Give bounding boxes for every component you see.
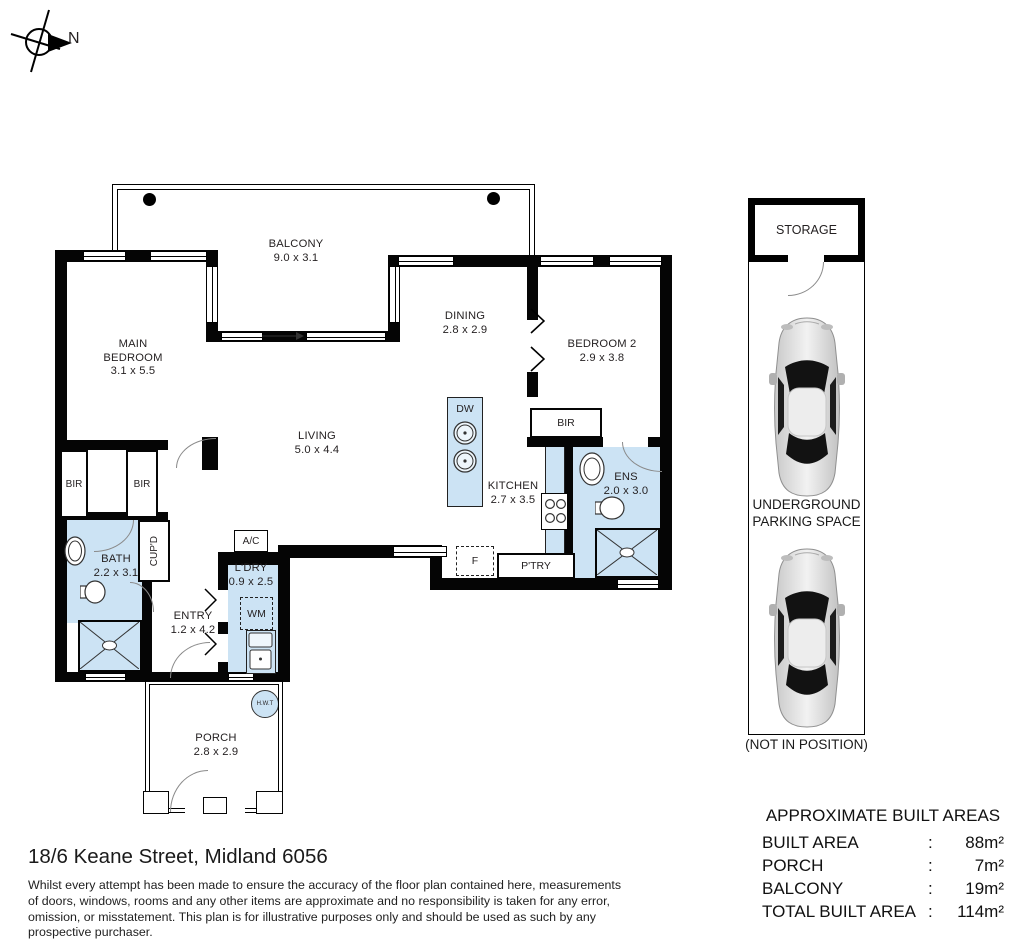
room-name: BEDROOM 2 xyxy=(557,338,647,352)
window xyxy=(389,266,400,323)
room-label-bath: BATH 2.2 x 3.1 xyxy=(76,553,156,580)
porch-post xyxy=(143,791,169,814)
window xyxy=(83,251,126,261)
window xyxy=(306,332,386,341)
room-label-laundry: L'DRY 0.9 x 2.5 xyxy=(211,562,291,589)
room-dims: 2.8 x 2.9 xyxy=(176,746,256,760)
room-dims: 2.9 x 3.8 xyxy=(557,352,647,366)
room-name: MAIN BEDROOM xyxy=(93,338,173,365)
built-areas-table: APPROXIMATE BUILT AREAS BUILT AREA : 88m… xyxy=(762,806,1004,923)
window xyxy=(540,256,594,266)
porch-post xyxy=(256,791,283,814)
pantry-label: P'TRY xyxy=(521,560,551,572)
robe-label: BIR xyxy=(557,417,575,429)
window xyxy=(221,332,263,341)
fridge: F xyxy=(456,546,494,576)
window xyxy=(206,266,218,323)
room-label-ensuite: ENS 2.0 x 3.0 xyxy=(586,471,666,498)
areas-row: PORCH : 7m² xyxy=(762,854,1004,877)
balcony-column xyxy=(487,192,500,205)
window xyxy=(609,256,662,266)
parking-caption: UNDERGROUND PARKING SPACE xyxy=(740,496,873,530)
hall-robe-1: BIR xyxy=(60,450,88,518)
wall xyxy=(527,372,538,397)
room-label-kitchen: KITCHEN 2.7 x 3.5 xyxy=(473,480,553,507)
room-name: BALCONY xyxy=(256,238,336,252)
robe-label: BIR xyxy=(134,479,151,490)
window xyxy=(393,546,447,557)
areas-title: APPROXIMATE BUILT AREAS xyxy=(762,806,1004,826)
hall-robe-2: BIR xyxy=(126,450,158,518)
room-name: L'DRY xyxy=(211,562,291,576)
area-separator: : xyxy=(928,877,944,900)
room-dims: 2.0 x 3.0 xyxy=(586,485,666,499)
area-label: TOTAL BUILT AREA xyxy=(762,900,928,923)
room-dims: 5.0 x 4.4 xyxy=(277,444,357,458)
room-label-balcony: BALCONY 9.0 x 3.1 xyxy=(256,238,336,265)
washing-machine: WM xyxy=(240,597,273,630)
room-name: ENTRY xyxy=(153,610,233,624)
ensuite-shower xyxy=(595,528,660,578)
area-value: 7m² xyxy=(944,854,1004,877)
room-dims: 1.2 x 4.2 xyxy=(153,624,233,638)
room-label-living: LIVING 5.0 x 4.4 xyxy=(277,430,357,457)
room-name: KITCHEN xyxy=(473,480,553,494)
parking-note: (NOT IN POSITION) xyxy=(730,736,883,753)
door-arc xyxy=(170,642,210,678)
area-label: BALCONY xyxy=(762,877,928,900)
sliding-door-arrow-icon xyxy=(262,330,304,342)
window xyxy=(85,673,126,681)
balcony-column xyxy=(143,193,156,206)
car-top-view-icon xyxy=(767,315,847,498)
wm-label: WM xyxy=(247,608,266,620)
wall xyxy=(527,437,603,447)
room-name: PORCH xyxy=(176,732,256,746)
room-name: LIVING xyxy=(277,430,357,444)
storage-label: STORAGE xyxy=(776,223,837,237)
area-separator: : xyxy=(928,831,944,854)
robe-label: BIR xyxy=(66,479,83,490)
door-arc xyxy=(176,438,216,468)
pantry: P'TRY xyxy=(497,553,575,579)
bath-shower xyxy=(78,620,142,672)
area-value: 88m² xyxy=(944,831,1004,854)
parking-section: STORAGE UNDERGROUND PARKIN xyxy=(730,190,890,770)
dishwasher-label: DW xyxy=(448,403,482,415)
room-dims: 3.1 x 5.5 xyxy=(93,365,173,379)
room-label-main-bedroom: MAIN BEDROOM 3.1 x 5.5 xyxy=(93,338,173,379)
window xyxy=(617,579,659,589)
area-separator: : xyxy=(928,854,944,877)
area-label: BUILT AREA xyxy=(762,831,928,854)
areas-row: BUILT AREA : 88m² xyxy=(762,831,1004,854)
room-name: ENS xyxy=(586,471,666,485)
bifold-door-chevron-icon xyxy=(204,588,217,612)
disclaimer-text: Whilst every attempt has been made to en… xyxy=(28,878,632,941)
parking-caption-line2: PARKING SPACE xyxy=(740,513,873,530)
room-dims: 2.8 x 2.9 xyxy=(425,324,505,338)
room-name: BATH xyxy=(76,553,156,567)
car-top-view-icon xyxy=(767,546,847,729)
sliding-door-chevron-icon xyxy=(530,346,545,372)
trough-icon xyxy=(247,631,274,672)
porch-post xyxy=(203,797,227,814)
room-label-porch: PORCH 2.8 x 2.9 xyxy=(176,732,256,759)
area-value: 114m² xyxy=(944,900,1004,923)
area-separator: : xyxy=(928,900,944,923)
air-conditioner: A/C xyxy=(234,530,268,552)
bedroom2-robe: BIR xyxy=(530,408,602,438)
floor-plan: DW BIR BIR BIR CUP'D A/C WM F P'TRY xyxy=(0,0,700,830)
areas-row: BALCONY : 19m² xyxy=(762,877,1004,900)
room-label-dining: DINING 2.8 x 2.9 xyxy=(425,310,505,337)
toilet-icon xyxy=(80,580,106,604)
window xyxy=(398,256,454,266)
room-dims: 2.7 x 3.5 xyxy=(473,494,553,508)
ac-label: A/C xyxy=(243,536,260,547)
room-name: DINING xyxy=(425,310,505,324)
double-sink-icon xyxy=(448,417,482,487)
toilet-icon xyxy=(595,495,625,521)
room-dims: 9.0 x 3.1 xyxy=(256,252,336,266)
room-label-entry: ENTRY 1.2 x 4.2 xyxy=(153,610,233,637)
areas-row: TOTAL BUILT AREA : 114m² xyxy=(762,900,1004,923)
room-label-bedroom2: BEDROOM 2 2.9 x 3.8 xyxy=(557,338,647,365)
property-address: 18/6 Keane Street, Midland 6056 xyxy=(28,845,328,869)
shower-icon xyxy=(80,622,139,669)
window xyxy=(150,251,207,261)
room-dims: 0.9 x 2.5 xyxy=(211,576,291,590)
area-label: PORCH xyxy=(762,854,928,877)
parking-caption-line1: UNDERGROUND xyxy=(740,496,873,513)
laundry-trough xyxy=(246,630,276,674)
wall xyxy=(55,440,168,450)
shower-icon xyxy=(597,530,657,575)
area-value: 19m² xyxy=(944,877,1004,900)
wall xyxy=(660,255,672,590)
fridge-label: F xyxy=(472,555,478,567)
floorplan-page: N xyxy=(0,0,1024,952)
room-dims: 2.2 x 3.1 xyxy=(76,567,156,581)
sliding-door-chevron-icon xyxy=(530,308,545,334)
